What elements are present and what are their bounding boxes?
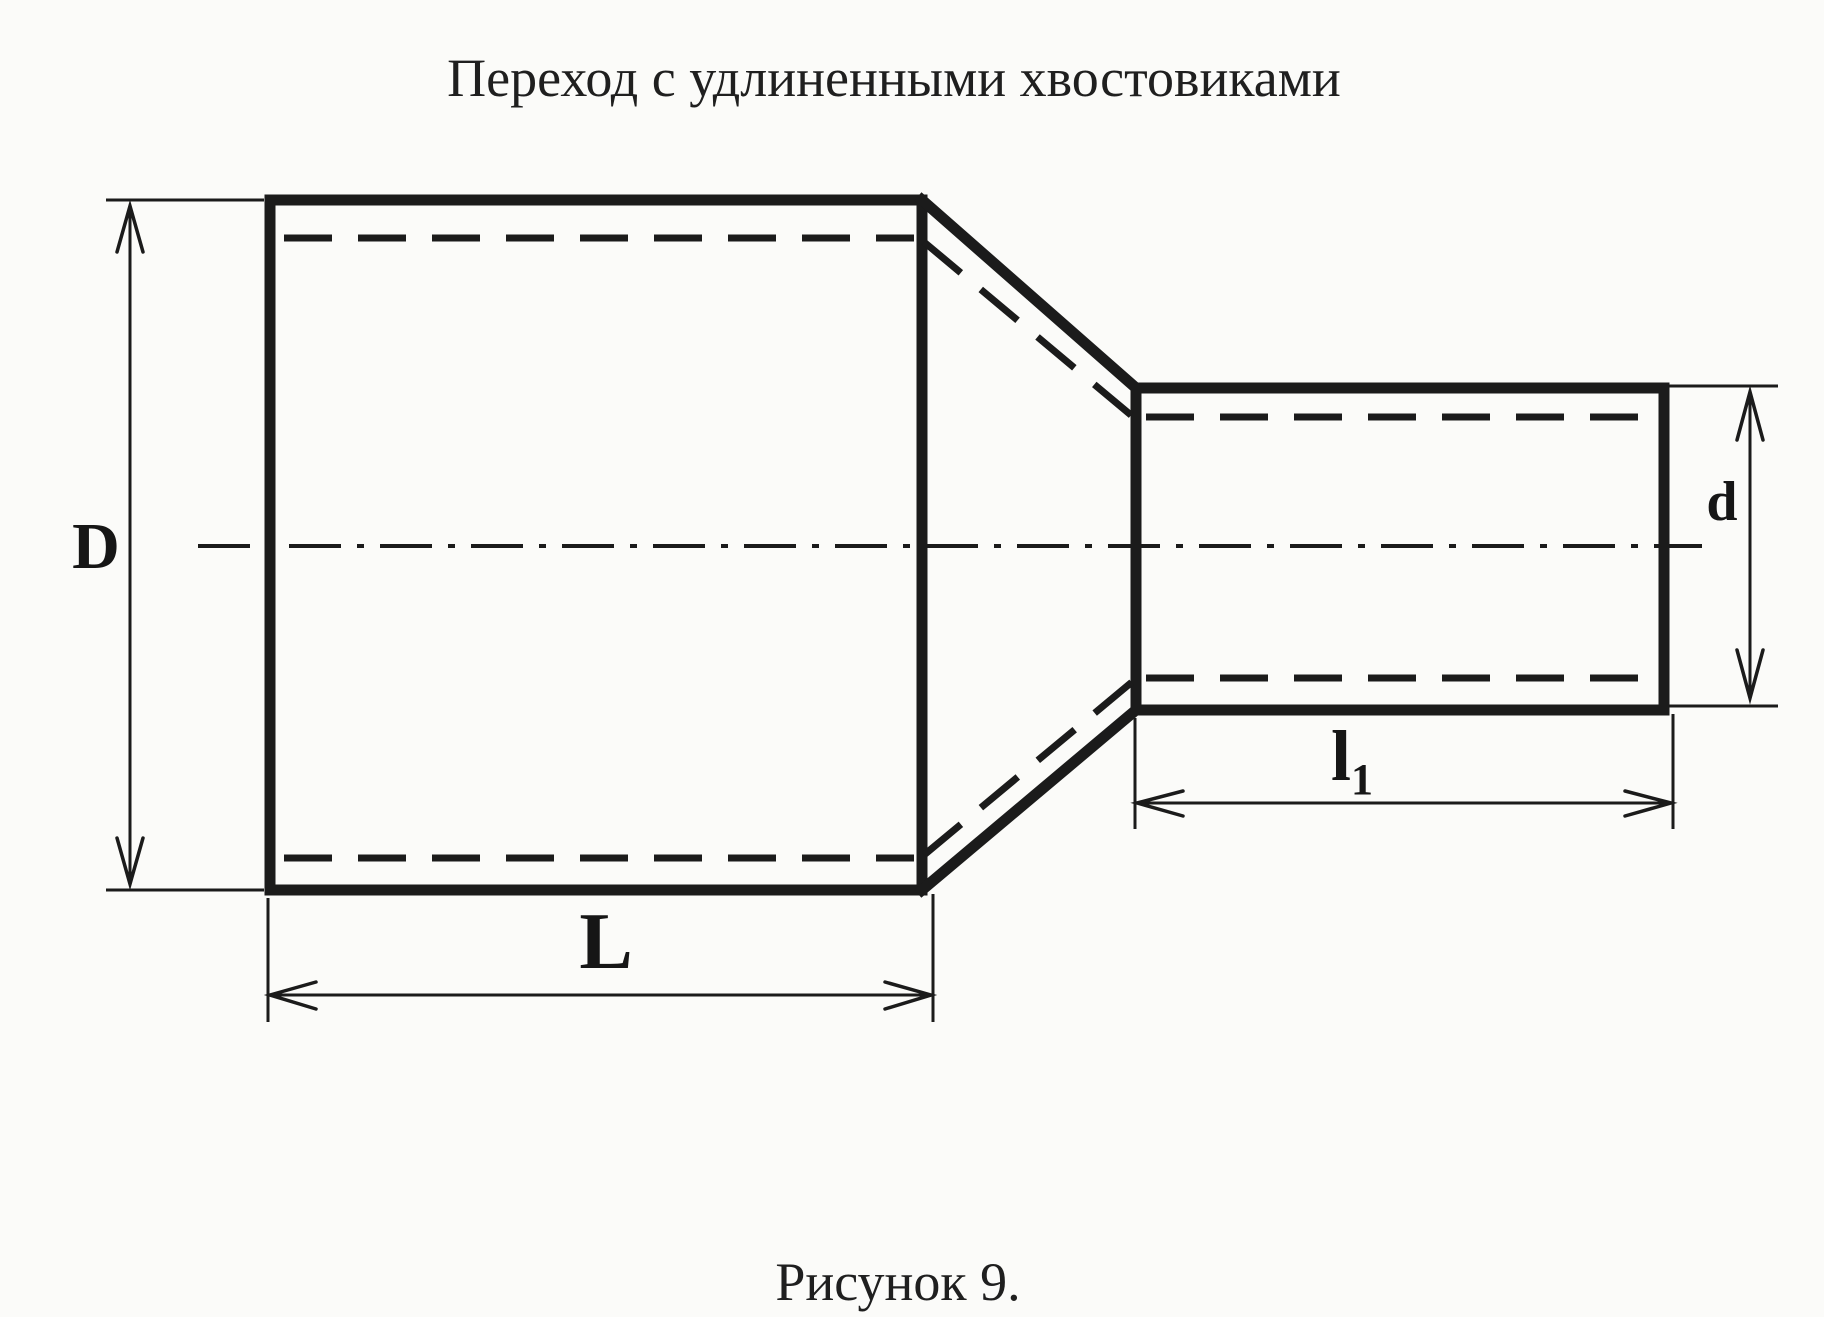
dim-L-label: L: [579, 898, 632, 986]
dim-l1-label-subscript: 1: [1351, 755, 1373, 804]
figure-caption: Рисунок 9.: [775, 1252, 1020, 1312]
drawing-title: Переход с удлиненными хвостовиками: [447, 48, 1341, 108]
dim-D-label: D: [72, 510, 120, 583]
dim-d-label: d: [1706, 471, 1737, 533]
scanned-drawing-page: Переход с удлиненными хвостовиками: [0, 0, 1824, 1317]
reducer-drawing: Переход с удлиненными хвостовиками: [0, 0, 1824, 1317]
dim-l1-label-main: l: [1331, 716, 1351, 796]
